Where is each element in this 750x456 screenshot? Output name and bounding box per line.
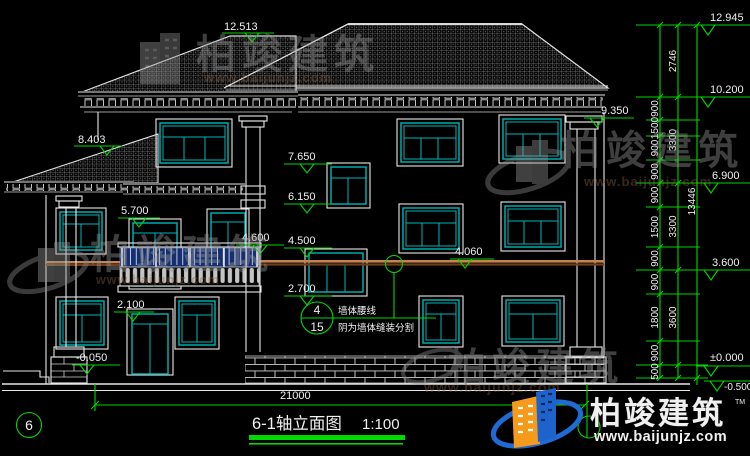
title-underline-thick [249,435,405,440]
sheet-number: 15 [310,320,324,334]
note-line1: 墙体腰线 [338,305,377,317]
watermark-brand-name: 柏竣建筑 [90,233,274,277]
axis-label: 6 [25,417,33,433]
elevation-label: 12.945 [710,12,744,24]
dim-segment: 900 [650,273,661,290]
dim-segment: 1800 [650,306,661,329]
logo-website: www.baijunjz.com [593,429,727,445]
elevation-label: 7.650 [288,151,316,163]
elevation-label: 3.600 [712,257,740,269]
elevation-label: ±0.000 [710,352,744,364]
logo-trademark: TM [735,399,745,406]
elevation-label: -0.500 [724,382,750,393]
dim-overall: 13446 [687,187,698,215]
logo-building-orange [512,396,540,448]
elevation-label: 10.200 [710,84,744,96]
tower-cornice [78,91,298,113]
cad-elevation-screenshot: 12.513 8.403 9.350 7.650 6.150 5.700 4.6… [0,0,750,456]
elevation-label: 2.700 [288,283,316,295]
dim-segment: 900 [650,250,661,267]
elevation-label: -0.050 [76,352,107,364]
watermark-website: www.baijunjz.com [583,174,712,189]
elevation-label: 2.100 [117,299,145,311]
dim-segment: 900 [650,344,661,361]
elevation-drawing: 12.513 8.403 9.350 7.650 6.150 5.700 4.6… [0,0,750,456]
elevation-label: 6.150 [288,191,316,203]
dim-group: 3600 [668,306,679,329]
dim-segment: 1500 [650,215,661,238]
overall-width-label: 21000 [280,390,311,402]
elevation-label: 4.060 [455,246,483,258]
dim-group: 3300 [668,215,679,238]
drawing-scale: 1:100 [362,416,400,433]
elevation-label: 4.500 [288,235,316,247]
title-underline-thin [249,443,403,445]
note-line2: 阴为墙体缝装分割 [338,322,414,334]
drawing-title: 6-1轴立面图 [252,414,342,433]
watermark-website: www.baijunjz.com [203,70,332,85]
elevation-label: 5.700 [121,205,149,217]
tower-band [123,183,245,196]
watermark-brand-name: 柏竣建筑 [560,129,744,173]
dim-segment: 500 [650,363,661,380]
logo-building-blue [536,388,556,442]
elevation-label: 12.513 [224,21,258,33]
elevation-label: 8.403 [78,134,106,146]
logo-brand-name: 柏竣建筑 [590,396,726,431]
detail-number: 4 [314,303,321,317]
dim-segment: 2746 [668,49,679,72]
watermark-website: www.baijunjz.com [95,273,220,287]
dim-segment: 900 [650,100,661,117]
elevation-label: 9.350 [601,105,629,117]
